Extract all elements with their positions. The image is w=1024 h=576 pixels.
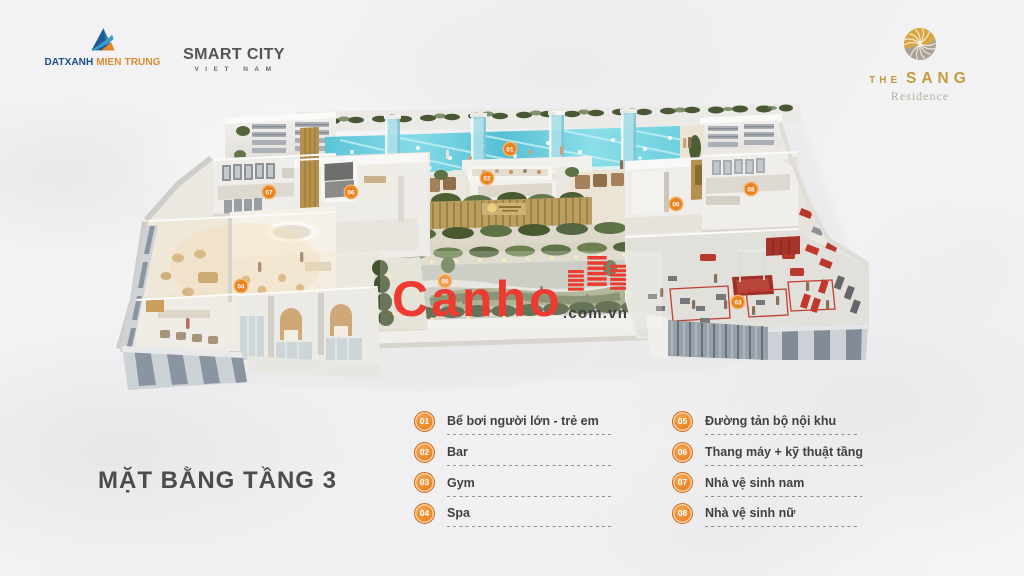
svg-text:04: 04 <box>237 284 245 291</box>
svg-text:07: 07 <box>265 190 273 197</box>
svg-text:08: 08 <box>747 187 755 194</box>
svg-text:06: 06 <box>347 190 355 197</box>
svg-text:06: 06 <box>672 202 680 209</box>
svg-text:02: 02 <box>483 176 491 183</box>
svg-text:01: 01 <box>506 147 514 154</box>
svg-text:03: 03 <box>734 300 742 307</box>
